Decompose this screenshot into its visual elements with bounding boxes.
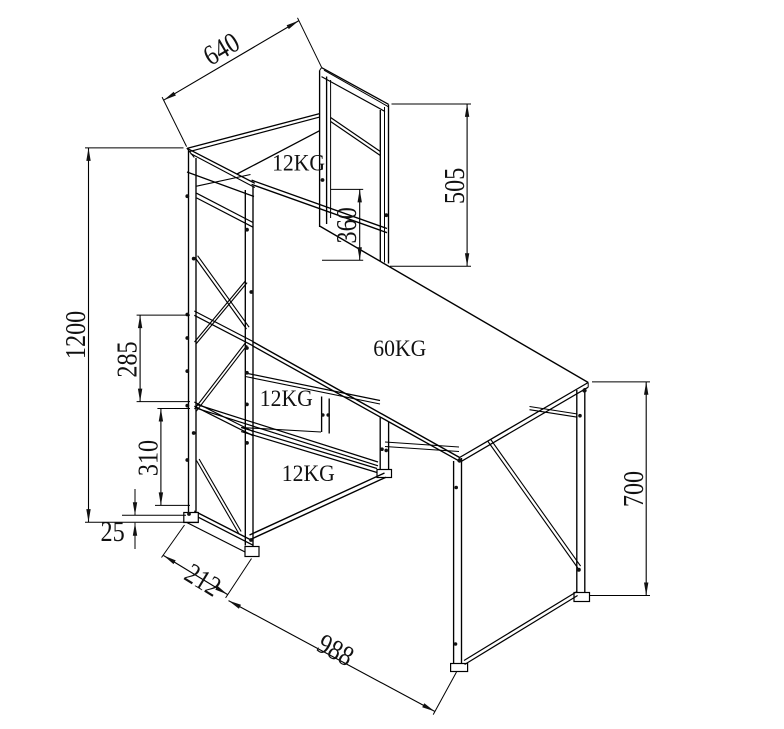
svg-text:60KG: 60KG	[373, 336, 426, 362]
svg-text:12KG: 12KG	[272, 151, 325, 177]
svg-text:12KG: 12KG	[260, 386, 313, 412]
svg-text:310: 310	[133, 440, 164, 476]
svg-text:360: 360	[332, 207, 363, 243]
svg-text:1200: 1200	[61, 311, 92, 359]
svg-text:505: 505	[440, 168, 471, 204]
svg-text:12KG: 12KG	[282, 461, 335, 487]
svg-text:285: 285	[113, 341, 144, 377]
svg-text:700: 700	[619, 471, 650, 507]
svg-text:25: 25	[101, 517, 125, 548]
